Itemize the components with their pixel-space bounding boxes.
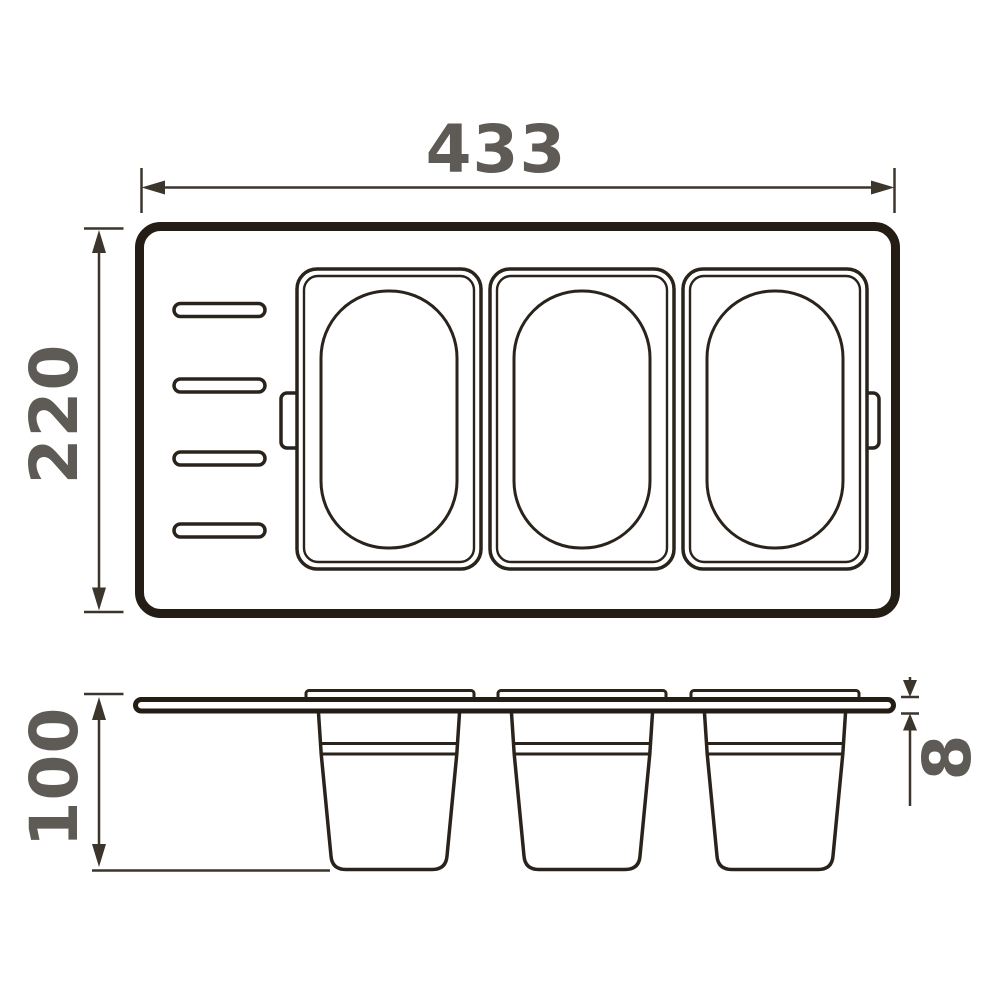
tub-1-body	[319, 713, 460, 870]
dimension-thickness: 8	[901, 677, 986, 806]
dimension-height-label: 100	[16, 707, 93, 848]
top-view	[140, 227, 896, 614]
height-arrow-top-icon	[92, 697, 106, 720]
dimension-height: 100	[16, 694, 330, 871]
container-1-basin	[321, 291, 457, 548]
height-arrow-bottom-icon	[92, 844, 106, 867]
container-3	[683, 269, 867, 569]
tub-2-body	[512, 713, 653, 870]
thickness-arrow-up-icon	[903, 714, 917, 731]
dimension-depth: 220	[16, 229, 124, 613]
drain-slot-1	[174, 304, 265, 317]
width-arrow-right-icon	[871, 181, 895, 195]
container-2-basin	[514, 291, 650, 548]
dimension-thickness-label: 8	[909, 734, 986, 781]
tub-1	[319, 713, 460, 870]
tub-2	[512, 713, 653, 870]
drawing-canvas: 433 220 100 8	[0, 0, 1000, 1000]
width-arrow-left-icon	[142, 181, 166, 195]
base-plate	[136, 700, 894, 712]
dimension-width-label: 433	[426, 111, 567, 188]
drain-slot-2	[174, 379, 265, 392]
dimension-width: 433	[142, 111, 895, 213]
drain-slot-3	[174, 452, 265, 465]
dimension-depth-label: 220	[16, 344, 93, 485]
thickness-arrow-down-icon	[903, 680, 917, 697]
container-1	[297, 269, 481, 569]
container-3-basin	[707, 291, 843, 548]
technical-drawing: 433 220 100 8	[0, 0, 1000, 1000]
tub-3	[705, 713, 846, 870]
depth-arrow-bottom-icon	[92, 588, 106, 611]
drain-slot-4	[174, 524, 265, 537]
side-view	[136, 691, 894, 870]
container-2	[490, 269, 674, 569]
depth-arrow-top-icon	[92, 230, 106, 253]
tub-3-body	[705, 713, 846, 870]
